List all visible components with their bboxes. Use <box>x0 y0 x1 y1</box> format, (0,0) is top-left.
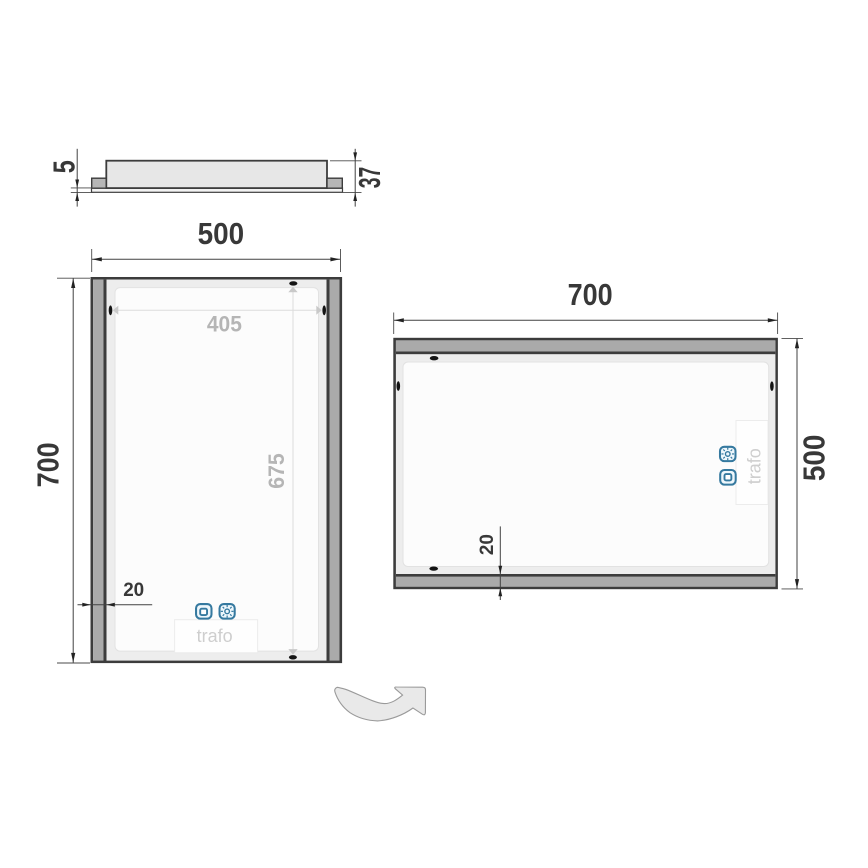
svg-text:700: 700 <box>32 442 66 487</box>
svg-text:20: 20 <box>477 534 498 555</box>
svg-text:5: 5 <box>47 160 81 173</box>
svg-text:500: 500 <box>798 435 832 482</box>
svg-text:405: 405 <box>207 311 242 336</box>
svg-text:20: 20 <box>123 580 144 601</box>
svg-text:trafo: trafo <box>744 448 764 484</box>
svg-text:trafo: trafo <box>197 626 233 646</box>
svg-text:675: 675 <box>264 453 289 489</box>
svg-text:700: 700 <box>568 278 613 312</box>
svg-text:37: 37 <box>353 167 387 189</box>
svg-text:500: 500 <box>198 217 245 251</box>
